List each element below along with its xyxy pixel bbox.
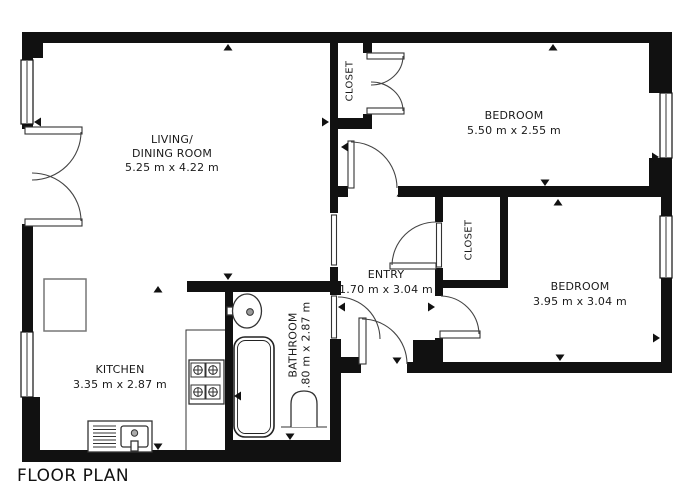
marker-triangle (34, 118, 41, 127)
living-entry-door-icon (332, 215, 337, 265)
marker-triangle (549, 44, 558, 51)
toilet-icon (281, 391, 327, 427)
door-opening (361, 362, 407, 373)
wall-segment (413, 340, 443, 362)
window-bedroom1-icon (660, 93, 672, 158)
wall-segment (500, 197, 508, 288)
floor-plan-drawing: LIVING/ DINING ROOM 5.25 m x 4.22 m BEDR… (0, 0, 700, 500)
marker-triangle (224, 44, 233, 51)
front-door-icon (359, 318, 407, 364)
marker-triangle (154, 286, 163, 293)
floor-plan-page: LIVING/ DINING ROOM 5.25 m x 4.22 m BEDR… (0, 0, 700, 500)
wall-segment (330, 357, 361, 367)
fixtures (44, 279, 327, 452)
marker-triangle (154, 444, 163, 451)
entry-dimensions: 1.70 m x 3.04 m (339, 283, 433, 296)
kitchen-label: KITCHEN (95, 363, 144, 376)
bedroom2-dimensions: 3.95 m x 3.04 m (533, 295, 627, 308)
bedroom1-door-icon (348, 141, 397, 188)
wall-segment (649, 32, 672, 93)
marker-triangle (428, 303, 435, 312)
wall-segment (187, 281, 341, 292)
stove-icon (189, 360, 224, 404)
room-labels: LIVING/ DINING ROOM 5.25 m x 4.22 m BEDR… (73, 60, 627, 391)
marker-triangle (653, 334, 660, 343)
marker-triangle (224, 274, 233, 281)
closet-middle-label: CLOSET (464, 219, 475, 260)
closet-double-door-icon (367, 53, 404, 114)
window-bedroom2-icon (660, 216, 672, 278)
bedroom1-dimensions: 5.50 m x 2.55 m (467, 124, 561, 137)
bedroom2-door-icon (440, 296, 480, 338)
wall-segment (225, 440, 341, 452)
kitchen-sink-icon (88, 421, 152, 452)
window-living-icon (21, 60, 33, 124)
door-opening (363, 53, 372, 114)
wall-segment (330, 118, 372, 129)
french-door-icon (25, 127, 82, 226)
living-room-label-line2: DINING ROOM (132, 147, 212, 160)
window-kitchen-icon (21, 332, 33, 397)
closet-top-label: CLOSET (345, 60, 356, 101)
bedroom1-label: BEDROOM (485, 109, 544, 122)
closet2-door-icon (390, 222, 442, 269)
page-title: FLOOR PLAN (17, 466, 129, 486)
marker-triangle (341, 143, 348, 152)
wall-segment (22, 32, 43, 58)
bathtub-icon (234, 337, 274, 437)
marker-triangle (556, 355, 565, 362)
windows (21, 60, 672, 397)
door-opening (22, 129, 33, 224)
entry-label: ENTRY (368, 268, 405, 281)
bedroom2-label: BEDROOM (551, 280, 610, 293)
kitchen-dimensions: 3.35 m x 2.87 m (73, 378, 167, 391)
living-room-dimensions: 5.25 m x 4.22 m (125, 161, 219, 174)
marker-triangle (286, 434, 295, 441)
bathroom-label: BATHROOM (287, 312, 300, 377)
marker-triangle (541, 180, 550, 187)
living-room-label-line1: LIVING/ (151, 133, 193, 146)
refrigerator-icon (44, 279, 86, 331)
marker-triangle (322, 118, 329, 127)
bathroom-dimensions: .80 m x 2.87 m (300, 302, 313, 389)
wall-segment (22, 32, 672, 43)
wall-segment (435, 280, 508, 288)
door-opening (348, 186, 398, 197)
marker-triangle (554, 199, 563, 206)
